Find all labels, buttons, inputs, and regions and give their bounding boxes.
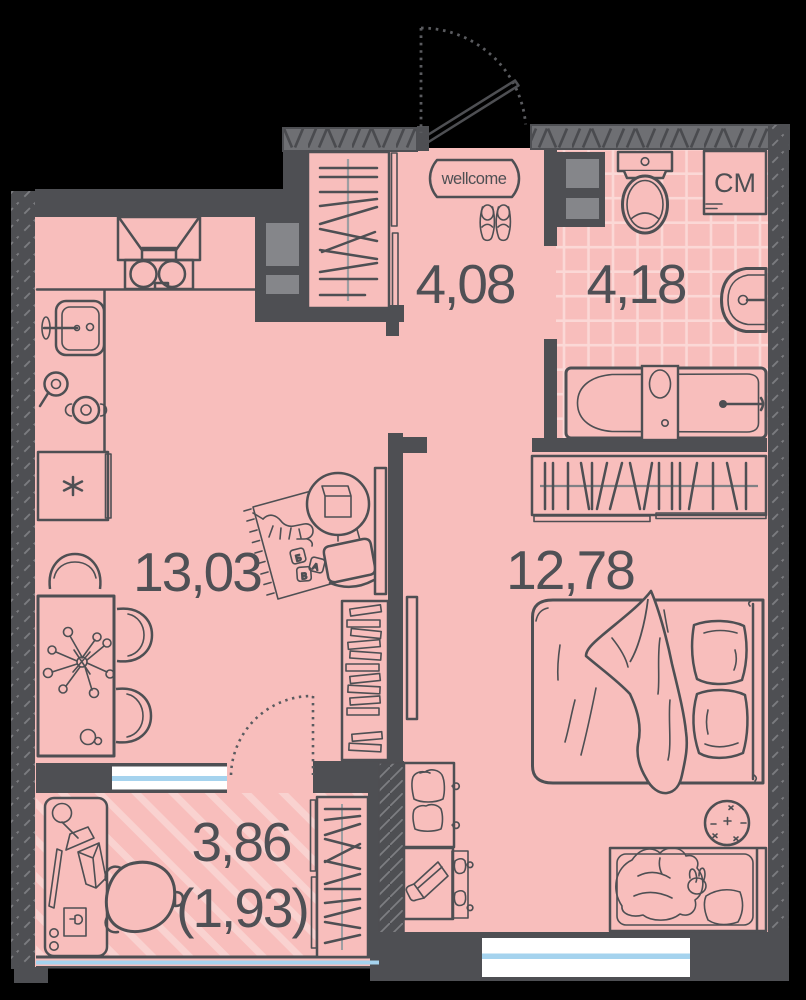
svg-text:4,18: 4,18 bbox=[586, 253, 685, 315]
svg-text:3,86: 3,86 bbox=[191, 811, 290, 873]
svg-text:wellcome: wellcome bbox=[441, 170, 507, 188]
svg-text:13,03: 13,03 bbox=[133, 541, 261, 603]
svg-text:В: В bbox=[301, 571, 308, 581]
svg-text:(1,93): (1,93) bbox=[176, 877, 308, 939]
svg-text:12,78: 12,78 bbox=[506, 539, 634, 601]
svg-text:4,08: 4,08 bbox=[415, 253, 514, 315]
svg-text:CM: CM bbox=[714, 168, 756, 198]
